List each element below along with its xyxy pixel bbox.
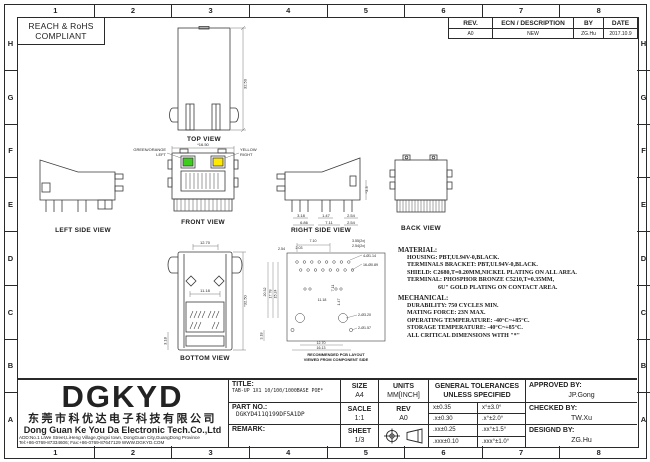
pcb-dim: 2.54 bbox=[278, 247, 285, 251]
bottom-view-drawing: 12.70 11.18 bbox=[163, 240, 248, 362]
company-cell: DGKYD 东莞市科优达电子科技有限公司 Dong Guan Ke You Da… bbox=[17, 379, 228, 447]
tolerance-value: .xxx°±1.0° bbox=[477, 436, 525, 448]
scale-cell: SACLE 1:1 bbox=[340, 402, 378, 424]
company-name-en: Dong Guan Ke You Da Electronic Tech.Co.,… bbox=[17, 425, 228, 435]
pcb-dim: 3.55(2x) bbox=[352, 239, 365, 243]
material-line: 6U" GOLD PLATING ON CONTACT AREA. bbox=[398, 285, 640, 292]
scale-label: SACLE bbox=[348, 405, 372, 414]
designed-cell: DESIGND BY: ZG.Hu bbox=[525, 424, 637, 447]
pcb-caption-line2: VIEWED FROM COMPONENT SIDE bbox=[304, 357, 369, 362]
tolerance-value: x±0.35 bbox=[428, 402, 477, 413]
bv-dim-318: 3.18 bbox=[163, 336, 168, 345]
top-view-height-dim: 32.50 bbox=[243, 78, 248, 89]
checked-cell: CHECKED BY: TW.Xu bbox=[525, 402, 637, 424]
pcb-dim: 20.32 bbox=[263, 288, 267, 297]
tolerances-header2: UNLESS SPECIFIED bbox=[443, 391, 510, 400]
tolerances-header-cell: GENERAL TOLERANCES UNLESS SPECIFIED bbox=[428, 379, 525, 402]
size-cell: SIZE A4 bbox=[340, 379, 378, 402]
units-value: MM[INCH] bbox=[387, 391, 420, 400]
part-no-label: PART NO.: bbox=[232, 404, 337, 411]
notes-block: MATERIAL: HOUSING: PBT,UL94V-0,BLACK. TE… bbox=[398, 247, 640, 340]
checked-label: CHECKED BY: bbox=[529, 404, 634, 414]
projection-cell bbox=[378, 424, 428, 447]
tolerance-value: .xxx±0.10 bbox=[428, 436, 477, 448]
remark-cell: REMARK: bbox=[228, 424, 340, 447]
title-label: TITLE: bbox=[232, 381, 337, 388]
rev-cell: REV A0 bbox=[378, 402, 428, 424]
pcb-hole-callout: 2-Ø3.20 bbox=[358, 313, 371, 317]
company-name-cn: 东莞市科优达电子科技有限公司 bbox=[17, 413, 228, 425]
mechanical-line: STORAGE TEMPERATURE: -40°C~+85°C. bbox=[398, 325, 640, 332]
bv-dim-1270: 12.70 bbox=[200, 240, 211, 245]
right-side-view-drawing: 3.18 1.47 6.86 7.11 2.54 2.54 *3.3 RIGHT… bbox=[277, 158, 369, 234]
pcb-dim: 7.11 bbox=[331, 285, 335, 292]
scale-value: 1:1 bbox=[355, 414, 365, 423]
approved-label: APPROVED BY: bbox=[529, 381, 634, 391]
rsv-height-dim: *3.3 bbox=[364, 186, 369, 194]
pcb-dim: 2.03 bbox=[296, 246, 303, 250]
bv-dim-3250: *32.50 bbox=[243, 294, 248, 306]
pcb-hole-callout: 2-Ø1.57 bbox=[358, 326, 371, 330]
rev-value: A0 bbox=[399, 414, 408, 423]
approved-cell: APPROVED BY: JP.Gong bbox=[525, 379, 637, 402]
part-no-cell: PART NO.: DGKYD411Q199DF5A1DP bbox=[228, 402, 340, 424]
pcb-dim: 11.18 bbox=[318, 298, 327, 302]
pcb-layout-drawing: 7.10 2.03 2.54 3.55(2x) 2.54(2x) 4-Ø1.14… bbox=[260, 239, 386, 362]
tolerance-value: .xx°±1.5° bbox=[477, 424, 525, 436]
approved-value: JP.Gong bbox=[529, 391, 634, 401]
material-line: HOUSING: PBT,UL94V-0,BLACK. bbox=[398, 255, 640, 262]
left-side-view-drawing: LEFT SIDE VIEW bbox=[40, 160, 123, 234]
rsv-dim-254a: 2.54 bbox=[347, 213, 356, 218]
rev-label: REV bbox=[396, 405, 410, 414]
back-view-label: BACK VIEW bbox=[401, 225, 441, 232]
led-left-green bbox=[183, 158, 193, 166]
designed-value: ZG.Hu bbox=[529, 436, 634, 446]
front-view-label: FRONT VIEW bbox=[181, 219, 225, 226]
size-value: A4 bbox=[355, 391, 364, 400]
pcb-dim: 17.78 bbox=[269, 290, 273, 299]
led-right-yellow bbox=[213, 158, 223, 166]
mechanical-heading: MECHANICAL: bbox=[398, 295, 640, 303]
pcb-dim: 12.70 bbox=[317, 341, 326, 345]
front-view-drawing: *16.50 GREEN/ORANGE LEFT YELLOW RIGHT FR… bbox=[133, 142, 257, 226]
tolerance-value: .x°±2.0° bbox=[477, 413, 525, 424]
material-line: TERMINALS BRACKET: PBT,UL94V-0,BLACK. bbox=[398, 262, 640, 269]
sheet-value: 1/3 bbox=[355, 436, 365, 445]
tolerances-header1: GENERAL TOLERANCES bbox=[435, 382, 519, 391]
pcb-dim: 15.24 bbox=[274, 290, 278, 299]
rsv-dim-686: 6.86 bbox=[300, 220, 309, 225]
checked-value: TW.Xu bbox=[529, 414, 634, 424]
designed-label: DESIGND BY: bbox=[529, 426, 634, 436]
mechanical-line: ALL CRITICAL DIMENSIONS WITH "*" bbox=[398, 333, 640, 340]
pcb-dim: 7.10 bbox=[310, 239, 317, 243]
bottom-view-label: BOTTOM VIEW bbox=[180, 355, 230, 362]
part-no-value: DGKYD411Q199DF5A1DP bbox=[232, 411, 337, 418]
company-logo: DGKYD bbox=[17, 381, 228, 413]
pcb-dim: 3.18 bbox=[260, 333, 264, 340]
rsv-dim-711: 7.11 bbox=[325, 220, 333, 225]
pcb-dim: 16-Ø0.89 bbox=[363, 263, 378, 267]
mechanical-line: DURABILITY: 750 CYCLES MIN. bbox=[398, 303, 640, 310]
size-label: SIZE bbox=[352, 382, 368, 391]
sheet-cell: SHEET 1/3 bbox=[340, 424, 378, 447]
tolerance-value: .x±0.30 bbox=[428, 413, 477, 424]
title-cell: TITLE: TAB-UP 1X1 10/100/1000BASE POE* bbox=[228, 379, 340, 402]
bv-dim-1118: 11.18 bbox=[200, 288, 210, 293]
pcb-dim: 1.47 bbox=[337, 299, 341, 306]
right-side-view-label: RIGHT SIDE VIEW bbox=[291, 227, 352, 234]
title-block: DGKYD 东莞市科优达电子科技有限公司 Dong Guan Ke You Da… bbox=[17, 378, 637, 447]
front-view-width-dim: *16.50 bbox=[197, 142, 209, 147]
left-side-view-label: LEFT SIDE VIEW bbox=[55, 227, 111, 234]
led-left-label2: LEFT bbox=[156, 152, 166, 157]
units-cell: UNITS MM[INCH] bbox=[378, 379, 428, 402]
rsv-dim-254b: 2.54 bbox=[347, 220, 356, 225]
units-label: UNITS bbox=[393, 382, 414, 391]
remark-label: REMARK: bbox=[232, 426, 337, 433]
company-contact: Tel:+86-0769-87334606; Fax:+86-0769-8764… bbox=[17, 440, 228, 445]
rsv-dim-147: 1.47 bbox=[322, 213, 331, 218]
tolerance-value: .xx±0.25 bbox=[428, 424, 477, 436]
top-view-drawing: 32.50 TOP VIEW bbox=[170, 26, 248, 143]
pcb-dim: 2.54(2x) bbox=[352, 244, 365, 248]
led-right-label2: RIGHT bbox=[240, 152, 253, 157]
pcb-dim: 16.13 bbox=[317, 346, 326, 350]
third-angle-projection-icon bbox=[383, 428, 425, 444]
back-view-drawing: BACK VIEW bbox=[390, 155, 452, 232]
material-heading: MATERIAL: bbox=[398, 247, 640, 255]
rsv-dim-318: 3.18 bbox=[297, 213, 306, 218]
sheet-label: SHEET bbox=[348, 427, 371, 436]
title-value: TAB-UP 1X1 10/100/1000BASE POE* bbox=[232, 388, 337, 394]
pcb-dim: 4-Ø1.14 bbox=[363, 254, 376, 258]
drawing-sheet: 1 2 3 4 5 6 7 8 1 2 3 4 5 6 7 8 H G F E … bbox=[0, 0, 650, 462]
material-line: TERMINAL: PHOSPHOR BRONZE C5210,T=0.35MM… bbox=[398, 277, 640, 284]
mechanical-line: MATING FORCE: 23N MAX. bbox=[398, 310, 640, 317]
tolerance-value: x°±3.0° bbox=[477, 402, 525, 413]
material-line: SHIELD: C2680,T=0.20MM,NICKEL PLATING ON… bbox=[398, 270, 640, 277]
